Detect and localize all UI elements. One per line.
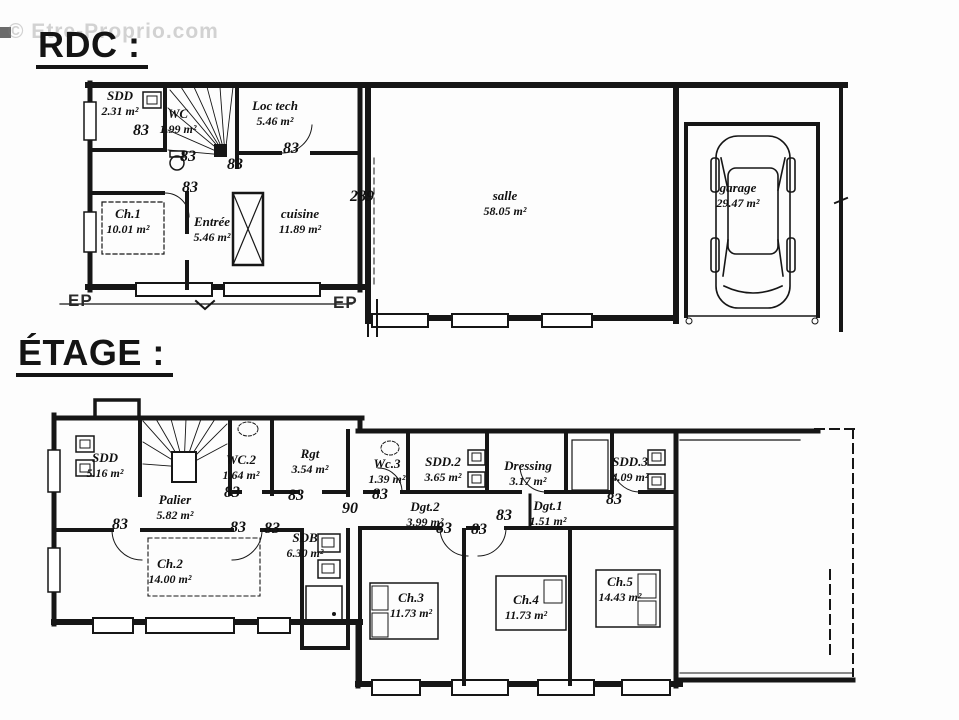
room-label-palier: Palier5.82 m² [140, 492, 210, 522]
car-icon [711, 136, 795, 308]
ep-label-left: EP [68, 291, 93, 311]
room-label-garage: garage29.47 m² [700, 180, 776, 210]
dim-label: 83 [264, 520, 280, 538]
dim-label: 83 [283, 140, 299, 158]
dim-label: 83 [180, 148, 196, 166]
room-label-ch2: Ch.214.00 m² [135, 556, 205, 586]
room-label-dgt1: Dgt.11.51 m² [515, 498, 581, 528]
dim-label: 83 [182, 179, 198, 197]
room-label-ch5: Ch.514.43 m² [582, 574, 658, 604]
dim-label: 83 [372, 486, 388, 504]
room-label-sdd2: SDD.23.65 m² [410, 454, 476, 484]
dim-label: 83 [288, 487, 304, 505]
dim-label: 83 [471, 521, 487, 539]
dim-label: 83 [224, 484, 240, 502]
dim-label: 83 [230, 519, 246, 537]
room-label-salle: salle58.05 m² [460, 188, 550, 218]
dim-label: 83 [606, 491, 622, 509]
room-label-sdd-rdc: SDD2.31 m² [88, 88, 152, 118]
room-label-loc-tech: Loc tech5.46 m² [230, 98, 320, 128]
room-label-dressing: Dressing3.17 m² [492, 458, 564, 488]
ep-label-right: EP [333, 293, 358, 313]
room-label-entree: Entrée5.46 m² [172, 214, 252, 244]
room-label-rgt: Rgt3.54 m² [275, 446, 345, 476]
dim-label: 83 [112, 516, 128, 534]
dim-label: 83 [496, 507, 512, 525]
room-label-ch1: Ch.110.01 m² [90, 206, 166, 236]
dim-label: 83 [227, 156, 243, 174]
room-label-wc2: WC.21.64 m² [215, 452, 267, 482]
dim-label: 83 [133, 122, 149, 140]
room-label-ch4: Ch.411.73 m² [490, 592, 562, 622]
dim-label-289: 289 [350, 188, 374, 206]
room-label-wc-rdc: WC1.99 m² [150, 106, 206, 136]
floorplan-scan: © Etre-Proprio.com RDC : ÉTAGE : [0, 0, 959, 720]
dim-label-90: 90 [342, 500, 358, 518]
room-label-sdd3: SDD.34.09 m² [598, 454, 662, 484]
room-label-ch3: Ch.311.73 m² [375, 590, 447, 620]
room-label-sdd-etage: SDD5.16 m² [75, 450, 135, 480]
room-label-cuisine: cuisine11.89 m² [258, 206, 342, 236]
room-label-sdb: SDB6.30 m² [275, 530, 335, 560]
room-label-wc3: Wc.31.39 m² [362, 456, 412, 486]
dim-label: 83 [436, 520, 452, 538]
